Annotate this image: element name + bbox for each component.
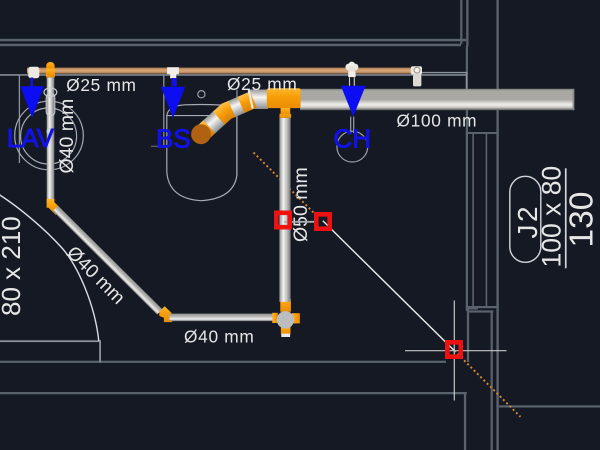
svg-text:CH: CH: [334, 123, 372, 153]
svg-text:Ø40 mm: Ø40 mm: [56, 99, 78, 174]
svg-text:Ø100 mm: Ø100 mm: [397, 110, 478, 130]
svg-text:Ø25 mm: Ø25 mm: [66, 75, 136, 95]
svg-text:BS: BS: [156, 123, 191, 153]
svg-text:Ø50 mm: Ø50 mm: [290, 167, 312, 242]
svg-text:Ø25 mm: Ø25 mm: [227, 74, 297, 94]
svg-text:80 x 210: 80 x 210: [0, 216, 26, 316]
svg-text:100 x 80: 100 x 80: [537, 166, 567, 268]
svg-text:LAV: LAV: [7, 123, 55, 153]
svg-text:Ø40 mm: Ø40 mm: [184, 326, 254, 346]
svg-text:130: 130: [563, 192, 600, 248]
